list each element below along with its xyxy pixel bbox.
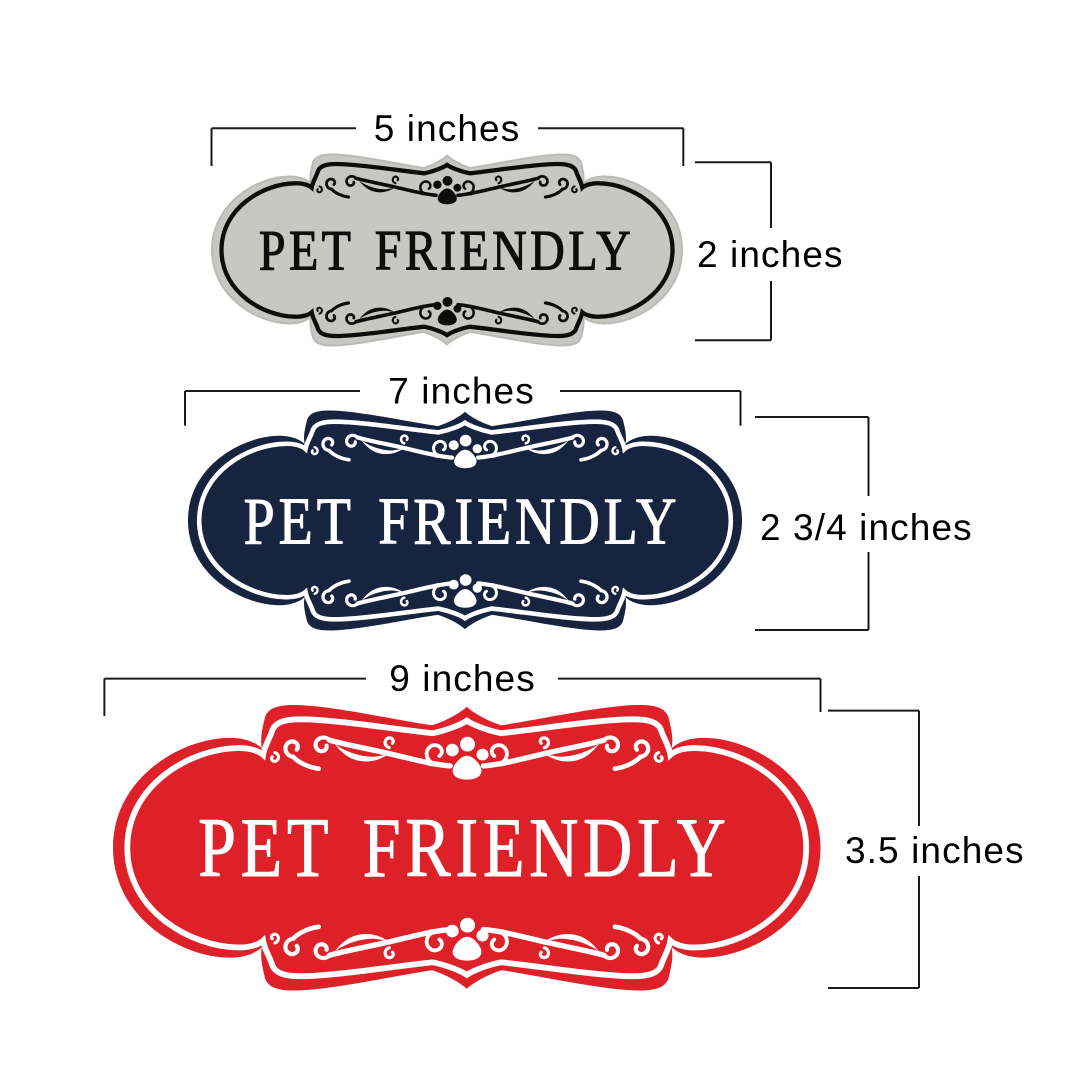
svg-text:3.5 inches: 3.5 inches xyxy=(845,830,1025,871)
svg-text:PET FRIENDLY: PET FRIENDLY xyxy=(244,485,681,559)
svg-text:7 inches: 7 inches xyxy=(388,371,535,412)
svg-text:PET FRIENDLY: PET FRIENDLY xyxy=(198,800,730,895)
svg-text:5 inches: 5 inches xyxy=(374,108,521,149)
svg-text:2 inches: 2 inches xyxy=(697,234,844,275)
svg-text:9 inches: 9 inches xyxy=(389,658,536,699)
svg-text:2 3/4 inches: 2 3/4 inches xyxy=(760,507,973,548)
svg-text:PET FRIENDLY: PET FRIENDLY xyxy=(259,220,634,283)
